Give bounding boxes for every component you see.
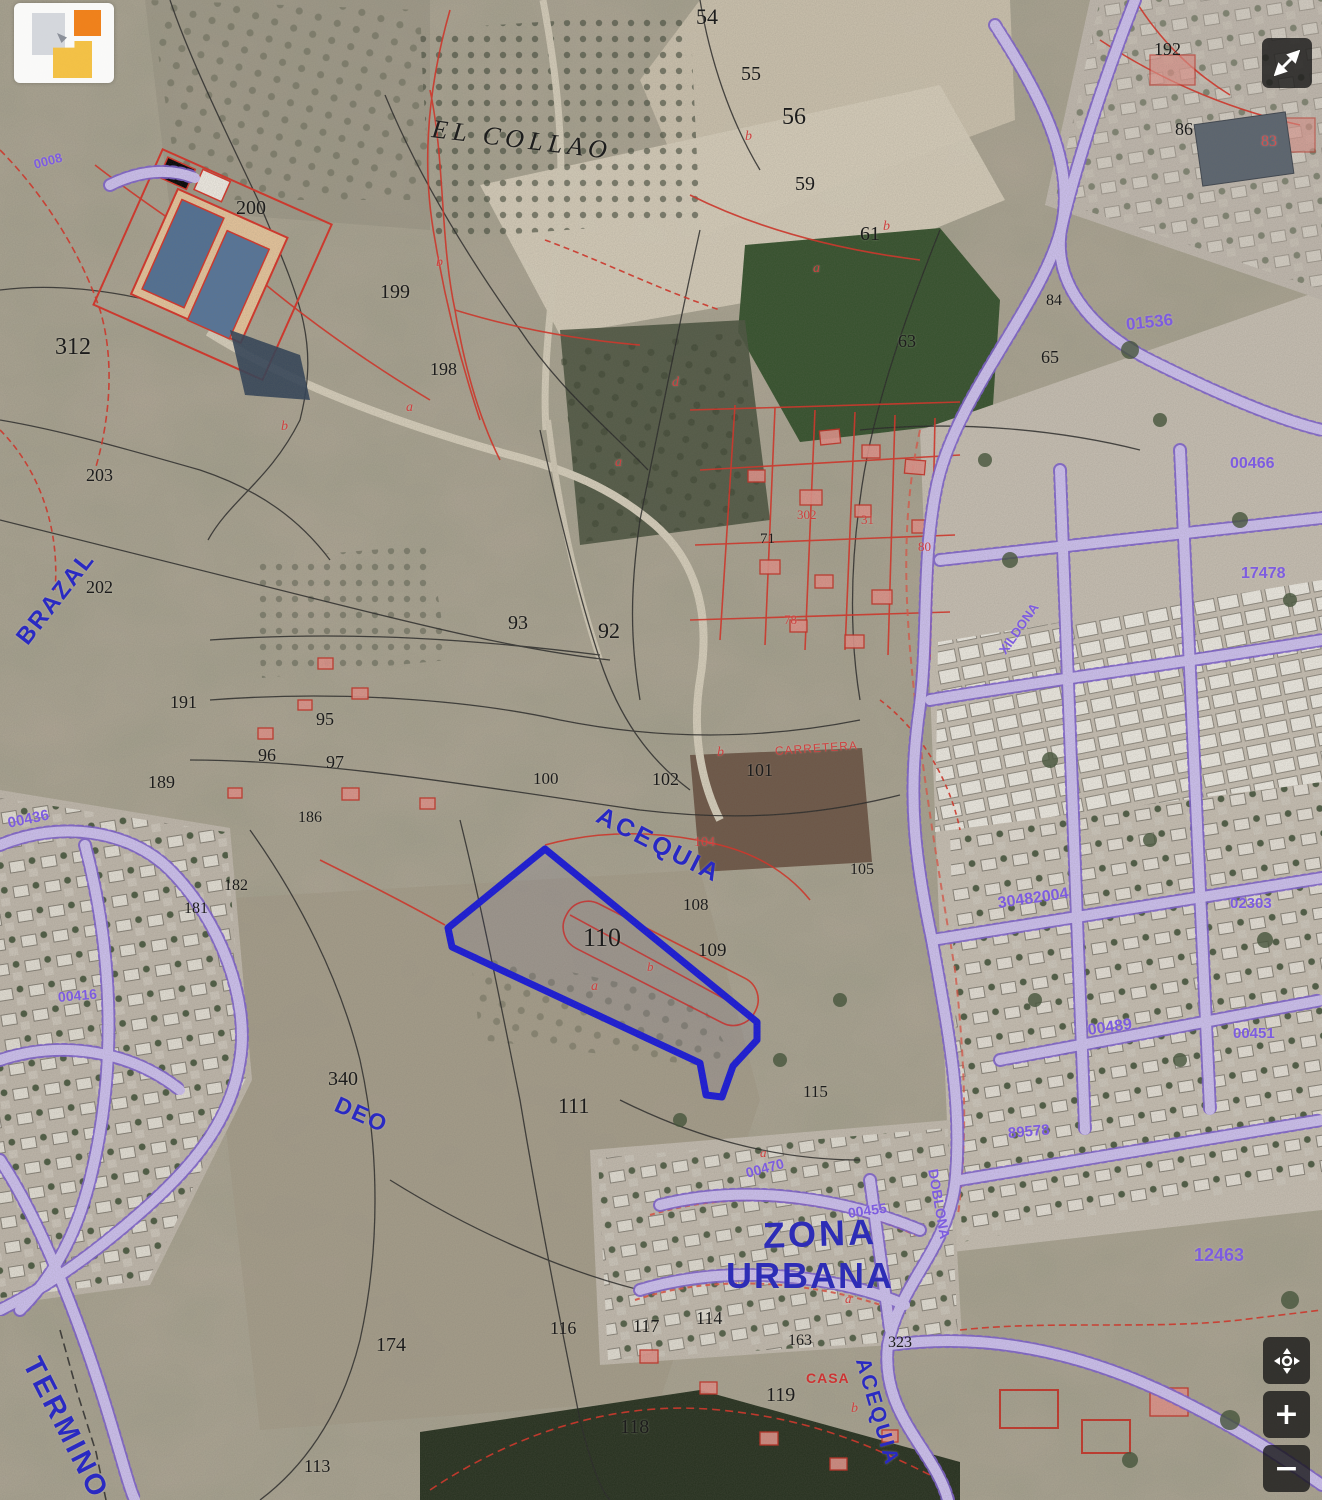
fullscreen-icon (1274, 50, 1300, 76)
logo-orange-square (74, 10, 101, 36)
pan-button[interactable] (1263, 1337, 1310, 1384)
fullscreen-button[interactable] (1262, 38, 1312, 88)
catastro-logo (14, 3, 114, 83)
zoom-out-button[interactable]: − (1263, 1445, 1310, 1492)
zoom-in-icon: + (1274, 1400, 1299, 1430)
map-viewport[interactable]: 5455565961636584861928331220019919820320… (0, 0, 1322, 1500)
pan-icon (1274, 1348, 1300, 1374)
zoom-out-icon: − (1274, 1454, 1299, 1484)
aerial-map-graphic (0, 0, 1322, 1500)
zoom-in-button[interactable]: + (1263, 1391, 1310, 1438)
